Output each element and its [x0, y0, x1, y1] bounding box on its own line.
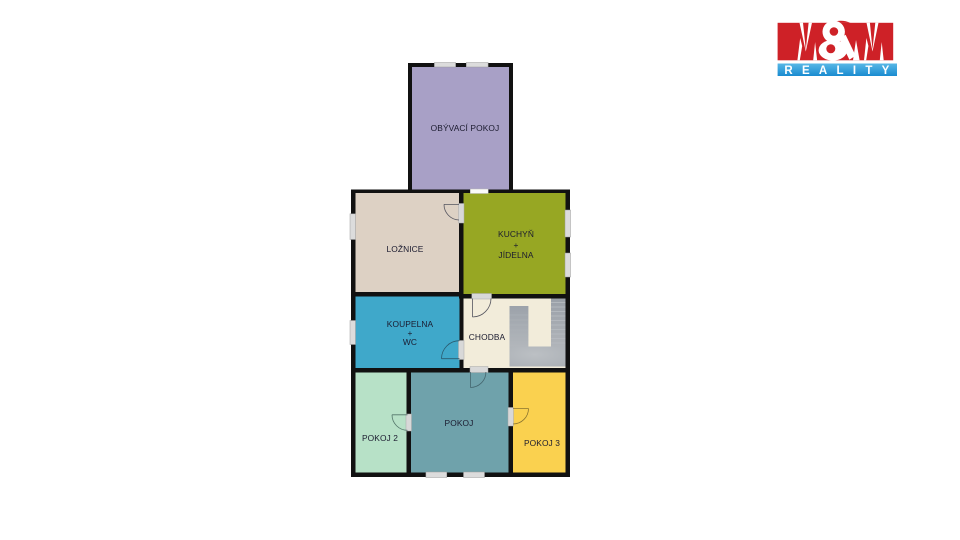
svg-text:POKOJ 3: POKOJ 3	[524, 438, 560, 448]
svg-text:WC: WC	[403, 337, 417, 347]
svg-text:OBÝVACÍ POKOJ: OBÝVACÍ POKOJ	[431, 123, 500, 133]
svg-text:POKOJ 2: POKOJ 2	[362, 433, 398, 443]
svg-text:CHODBA: CHODBA	[469, 332, 506, 342]
svg-text:KUCHYŇ: KUCHYŇ	[498, 229, 534, 239]
svg-text:REALITY: REALITY	[784, 65, 898, 77]
svg-text:+: +	[514, 240, 519, 250]
svg-text:LOŽNICE: LOŽNICE	[387, 244, 424, 254]
svg-text:POKOJ: POKOJ	[445, 418, 474, 428]
svg-text:JÍDELNA: JÍDELNA	[498, 250, 533, 260]
